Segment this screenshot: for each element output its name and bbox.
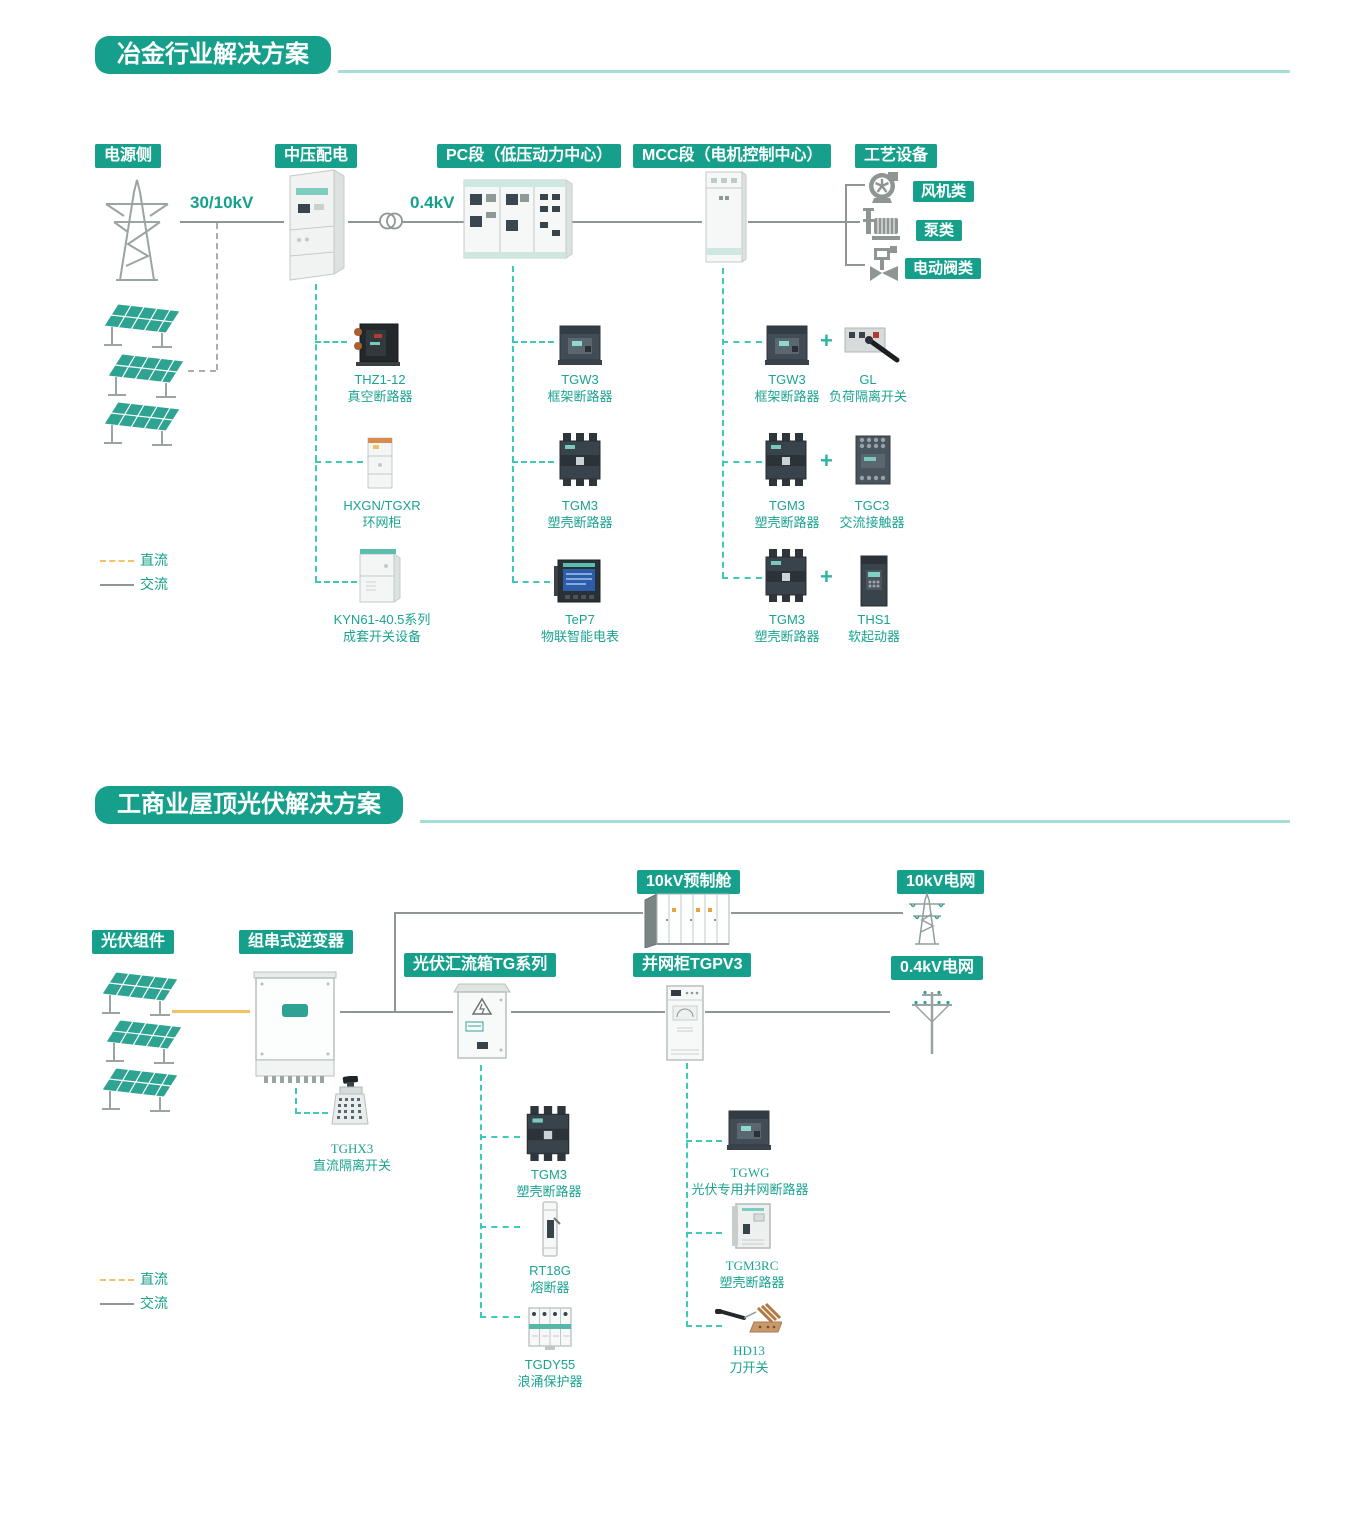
- dc-line: [172, 1010, 250, 1013]
- header-pc-section: PC段（低压动力中心）: [437, 144, 621, 168]
- ac-branch-line: [394, 912, 396, 1012]
- legend-dc-label: 直流: [140, 552, 168, 568]
- tep7-image: [552, 558, 604, 606]
- solar-panel-icon: [104, 350, 188, 398]
- section2-title: 工商业屋顶光伏解决方案: [95, 786, 403, 824]
- solar-panel-icon: [100, 398, 184, 446]
- tgc3-image: [852, 432, 894, 488]
- gridcab-device-connector: [686, 1232, 722, 1234]
- thz1-12-image: [348, 322, 402, 368]
- legend-ac-line: [100, 1303, 134, 1305]
- load-branch-line: [845, 184, 847, 266]
- gridcab-device-connector: [686, 1063, 688, 1327]
- device-label: RT18G熔断器: [529, 1262, 571, 1296]
- mv-device-connector: [315, 284, 317, 582]
- ac-line: [402, 221, 464, 223]
- tgm3-image: [525, 1106, 571, 1162]
- rt18g-image: [538, 1200, 562, 1258]
- combiner-device-connector: [480, 1136, 520, 1138]
- mv-device-connector: [315, 341, 347, 343]
- ac-line: [340, 1011, 453, 1013]
- device-label: GL负荷隔离开关: [829, 371, 907, 405]
- ac-line: [511, 1011, 665, 1013]
- device-label: TGW3框架断路器: [754, 371, 819, 405]
- ac-line: [348, 221, 381, 223]
- device-label: TGC3交流接触器: [839, 497, 904, 531]
- label-04kv-grid: 0.4kV电网: [891, 956, 983, 980]
- mcc-device-connector: [722, 268, 724, 578]
- mcc-device-connector: [722, 341, 762, 343]
- solar-panel-icon: [98, 968, 182, 1016]
- combiner-device-connector: [480, 1065, 482, 1318]
- mcc-cabinet-image: [700, 166, 749, 268]
- header-process-equipment: 工艺设备: [855, 144, 937, 168]
- label-combiner-box: 光伏汇流箱TG系列: [404, 953, 556, 977]
- pc-device-connector: [512, 461, 554, 463]
- tgpv3-cabinet-image: [665, 984, 705, 1062]
- device-label: TeP7物联智能电表: [541, 611, 619, 645]
- legend-ac-label: 交流: [140, 1295, 168, 1311]
- label-string-inverter: 组串式逆变器: [239, 930, 353, 954]
- gl-switch-image: [843, 324, 903, 366]
- legend-dc-line: [100, 560, 134, 562]
- load-type-fan: 风机类: [913, 181, 974, 202]
- header-mv-distribution: 中压配电: [275, 144, 357, 168]
- pv-feed-line: [188, 370, 216, 372]
- ac-line: [748, 221, 845, 223]
- hxgn-tgxr-image: [366, 432, 396, 490]
- tgw3-image: [763, 320, 811, 368]
- tghx3-image: [330, 1076, 370, 1128]
- pc-device-connector: [512, 266, 514, 582]
- pump-branch-line: [845, 221, 860, 223]
- tgdy55-image: [527, 1300, 573, 1352]
- fan-branch-line: [845, 184, 865, 186]
- section1-title-underline: [338, 70, 1290, 73]
- mv-device-connector: [315, 461, 363, 463]
- device-label: TGDY55浪涌保护器: [517, 1356, 582, 1390]
- pump-icon: [860, 206, 904, 242]
- pv-feed-line: [216, 223, 218, 370]
- device-label: TGM3塑壳断路器: [754, 611, 819, 645]
- device-label: TGM3塑壳断路器: [754, 497, 819, 531]
- plus-sign: +: [820, 450, 833, 472]
- device-label: TGHX3直流隔离开关: [313, 1140, 391, 1174]
- inverter-device-connector: [295, 1088, 297, 1114]
- valve-branch-line: [845, 264, 865, 266]
- fan-icon: [866, 170, 902, 204]
- utility-pole-icon: [905, 984, 960, 1054]
- solar-panel-icon: [100, 300, 184, 348]
- label-pv-modules: 光伏组件: [92, 930, 174, 954]
- header-mcc-section: MCC段（电机控制中心）: [633, 144, 831, 168]
- solar-panel-icon: [102, 1016, 186, 1064]
- inverter-device-connector: [295, 1112, 328, 1114]
- mcc-device-connector: [722, 577, 762, 579]
- pc-device-connector: [512, 341, 554, 343]
- ac-line: [180, 221, 284, 223]
- legend-dc-line: [100, 1279, 134, 1281]
- tgm3rc-image: [730, 1202, 774, 1250]
- device-label: HXGN/TGXR环网柜: [343, 497, 420, 531]
- device-label: TGM3塑壳断路器: [516, 1166, 581, 1200]
- label-grid-cabinet: 并网柜TGPV3: [633, 953, 751, 977]
- ac-line: [705, 1011, 890, 1013]
- pc-switchboard-image: [462, 172, 574, 266]
- mv-device-connector: [315, 581, 357, 583]
- legend-ac-line: [100, 584, 134, 586]
- section2-title-underline: [420, 820, 1290, 823]
- gridcab-device-connector: [686, 1140, 722, 1142]
- prefab-cabin-image: [643, 890, 731, 948]
- device-label: TGWG光伏专用并网断路器: [691, 1164, 808, 1198]
- header-power-side: 电源侧: [95, 144, 161, 168]
- hv-voltage-label: 30/10kV: [190, 193, 253, 213]
- section1-title: 冶金行业解决方案: [95, 36, 331, 74]
- valve-icon: [866, 246, 902, 284]
- kyn61-image: [358, 546, 402, 606]
- ac-line: [395, 912, 643, 914]
- string-inverter-image: [250, 968, 340, 1088]
- load-type-valve: 电动阀类: [905, 258, 981, 279]
- load-type-pump: 泵类: [916, 220, 962, 241]
- device-label: TGM3塑壳断路器: [547, 497, 612, 531]
- mv-cabinet-image: [284, 166, 350, 284]
- legend-dc-label: 直流: [140, 1271, 168, 1287]
- combiner-box-image: [453, 980, 511, 1066]
- device-label: THZ1-12真空断路器: [347, 371, 412, 405]
- device-label: KYN61-40.5系列成套开关设备: [334, 611, 431, 645]
- plus-sign: +: [820, 330, 833, 352]
- combiner-device-connector: [480, 1226, 520, 1228]
- solar-panel-icon: [98, 1064, 182, 1112]
- tgm3-image: [558, 433, 602, 487]
- solution-diagram-page: 冶金行业解决方案 电源侧 中压配电 PC段（低压动力中心） MCC段（电机控制中…: [0, 0, 1350, 1528]
- combiner-device-connector: [480, 1316, 520, 1318]
- ac-line: [731, 912, 903, 914]
- device-label: HD13刀开关: [729, 1342, 768, 1376]
- transformer-icon: [378, 210, 404, 232]
- device-label: THS1软起动器: [848, 611, 900, 645]
- tgw3-image: [556, 320, 604, 368]
- tgm3-image: [764, 433, 808, 487]
- hd13-image: [714, 1302, 782, 1338]
- device-label: TGW3框架断路器: [547, 371, 612, 405]
- plus-sign: +: [820, 566, 833, 588]
- ac-line: [572, 221, 702, 223]
- transmission-tower-icon: [92, 170, 182, 282]
- pc-device-connector: [512, 581, 550, 583]
- lv-voltage-label: 0.4kV: [410, 193, 454, 213]
- tgwg-image: [725, 1104, 773, 1154]
- grid-tower-icon: [903, 888, 951, 946]
- legend-ac-label: 交流: [140, 576, 168, 592]
- ths1-image: [858, 554, 890, 608]
- mcc-device-connector: [722, 461, 762, 463]
- device-label: TGM3RC塑壳断路器: [719, 1257, 784, 1291]
- tgm3-image: [764, 549, 808, 603]
